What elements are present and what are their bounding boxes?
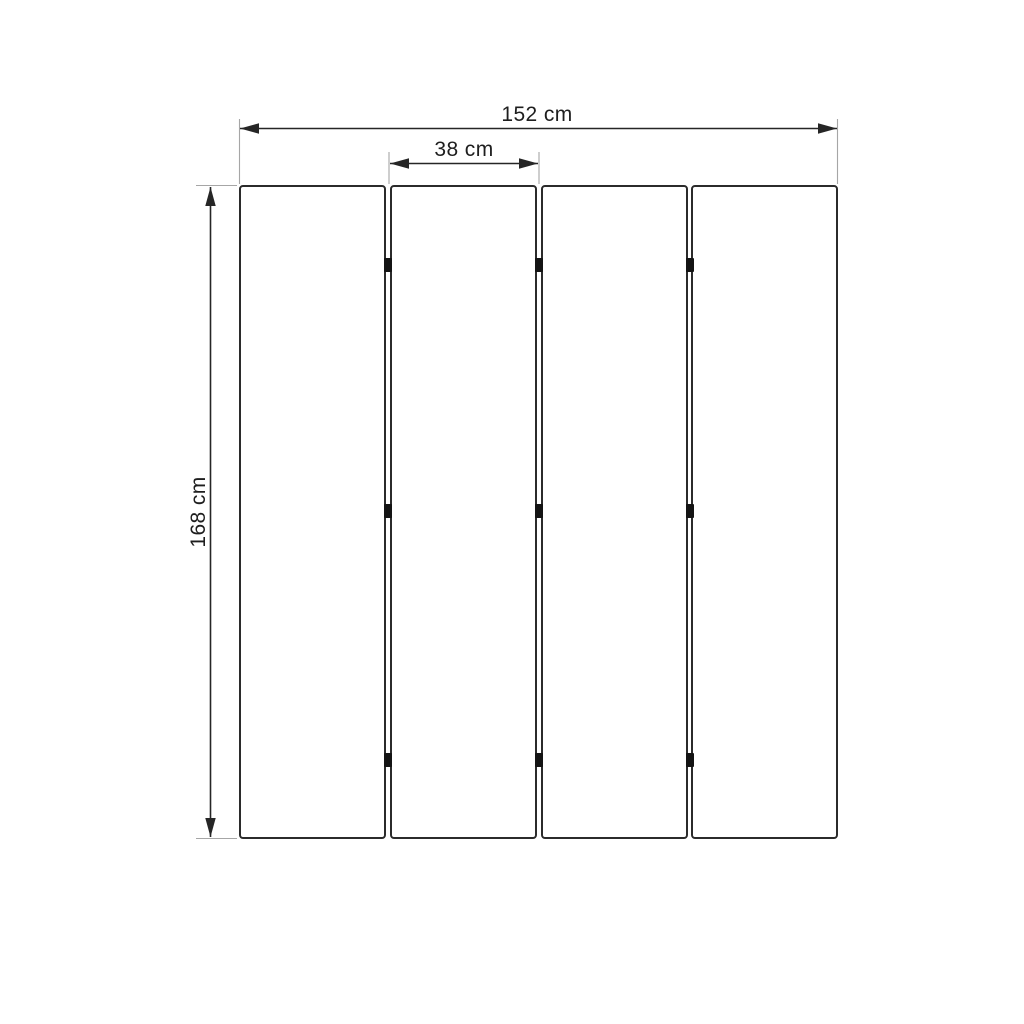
panel-1	[239, 185, 386, 839]
hinge-marker	[686, 753, 694, 767]
height-dimension: 168 cm	[187, 186, 237, 839]
panel-4	[691, 185, 838, 839]
hinge-marker	[384, 753, 392, 767]
panel-width-label: 38 cm	[434, 138, 493, 161]
diagram-canvas: 152 cm 38 cm 168 cm	[0, 0, 1024, 1024]
panel-width-dimension: 38 cm	[389, 138, 539, 184]
hinge-marker	[535, 753, 543, 767]
hinge-marker	[535, 504, 543, 518]
panel-2	[390, 185, 537, 839]
height-label: 168 cm	[187, 476, 210, 547]
panel-3	[541, 185, 688, 839]
hinge-marker	[686, 258, 694, 272]
total-width-label: 152 cm	[501, 103, 572, 126]
hinge-marker	[686, 504, 694, 518]
hinge-marker	[535, 258, 543, 272]
hinge-marker	[384, 504, 392, 518]
hinge-marker	[384, 258, 392, 272]
